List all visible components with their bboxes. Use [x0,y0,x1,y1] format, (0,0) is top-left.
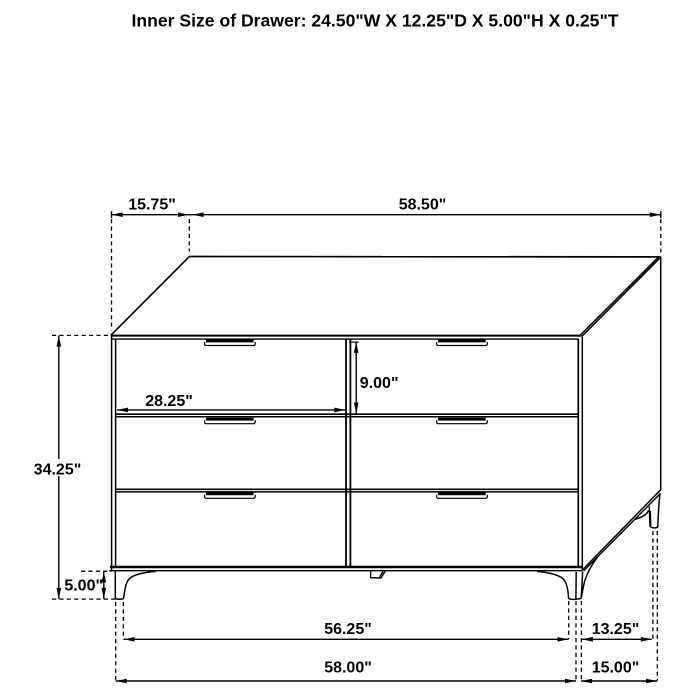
svg-text:34.25": 34.25" [34,461,82,478]
svg-text:Inner Size of Drawer: 24.50"W: Inner Size of Drawer: 24.50"W X 12.25"D … [131,11,618,31]
svg-text:15.75": 15.75" [128,197,176,214]
svg-text:5.00": 5.00" [64,578,103,595]
svg-text:56.25": 56.25" [324,621,372,638]
svg-text:58.00": 58.00" [324,660,372,677]
svg-text:13.25": 13.25" [592,621,640,638]
svg-text:28.25": 28.25" [145,393,193,410]
svg-text:9.00": 9.00" [360,375,399,392]
svg-text:15.00": 15.00" [592,660,640,677]
svg-text:58.50": 58.50" [399,197,447,214]
